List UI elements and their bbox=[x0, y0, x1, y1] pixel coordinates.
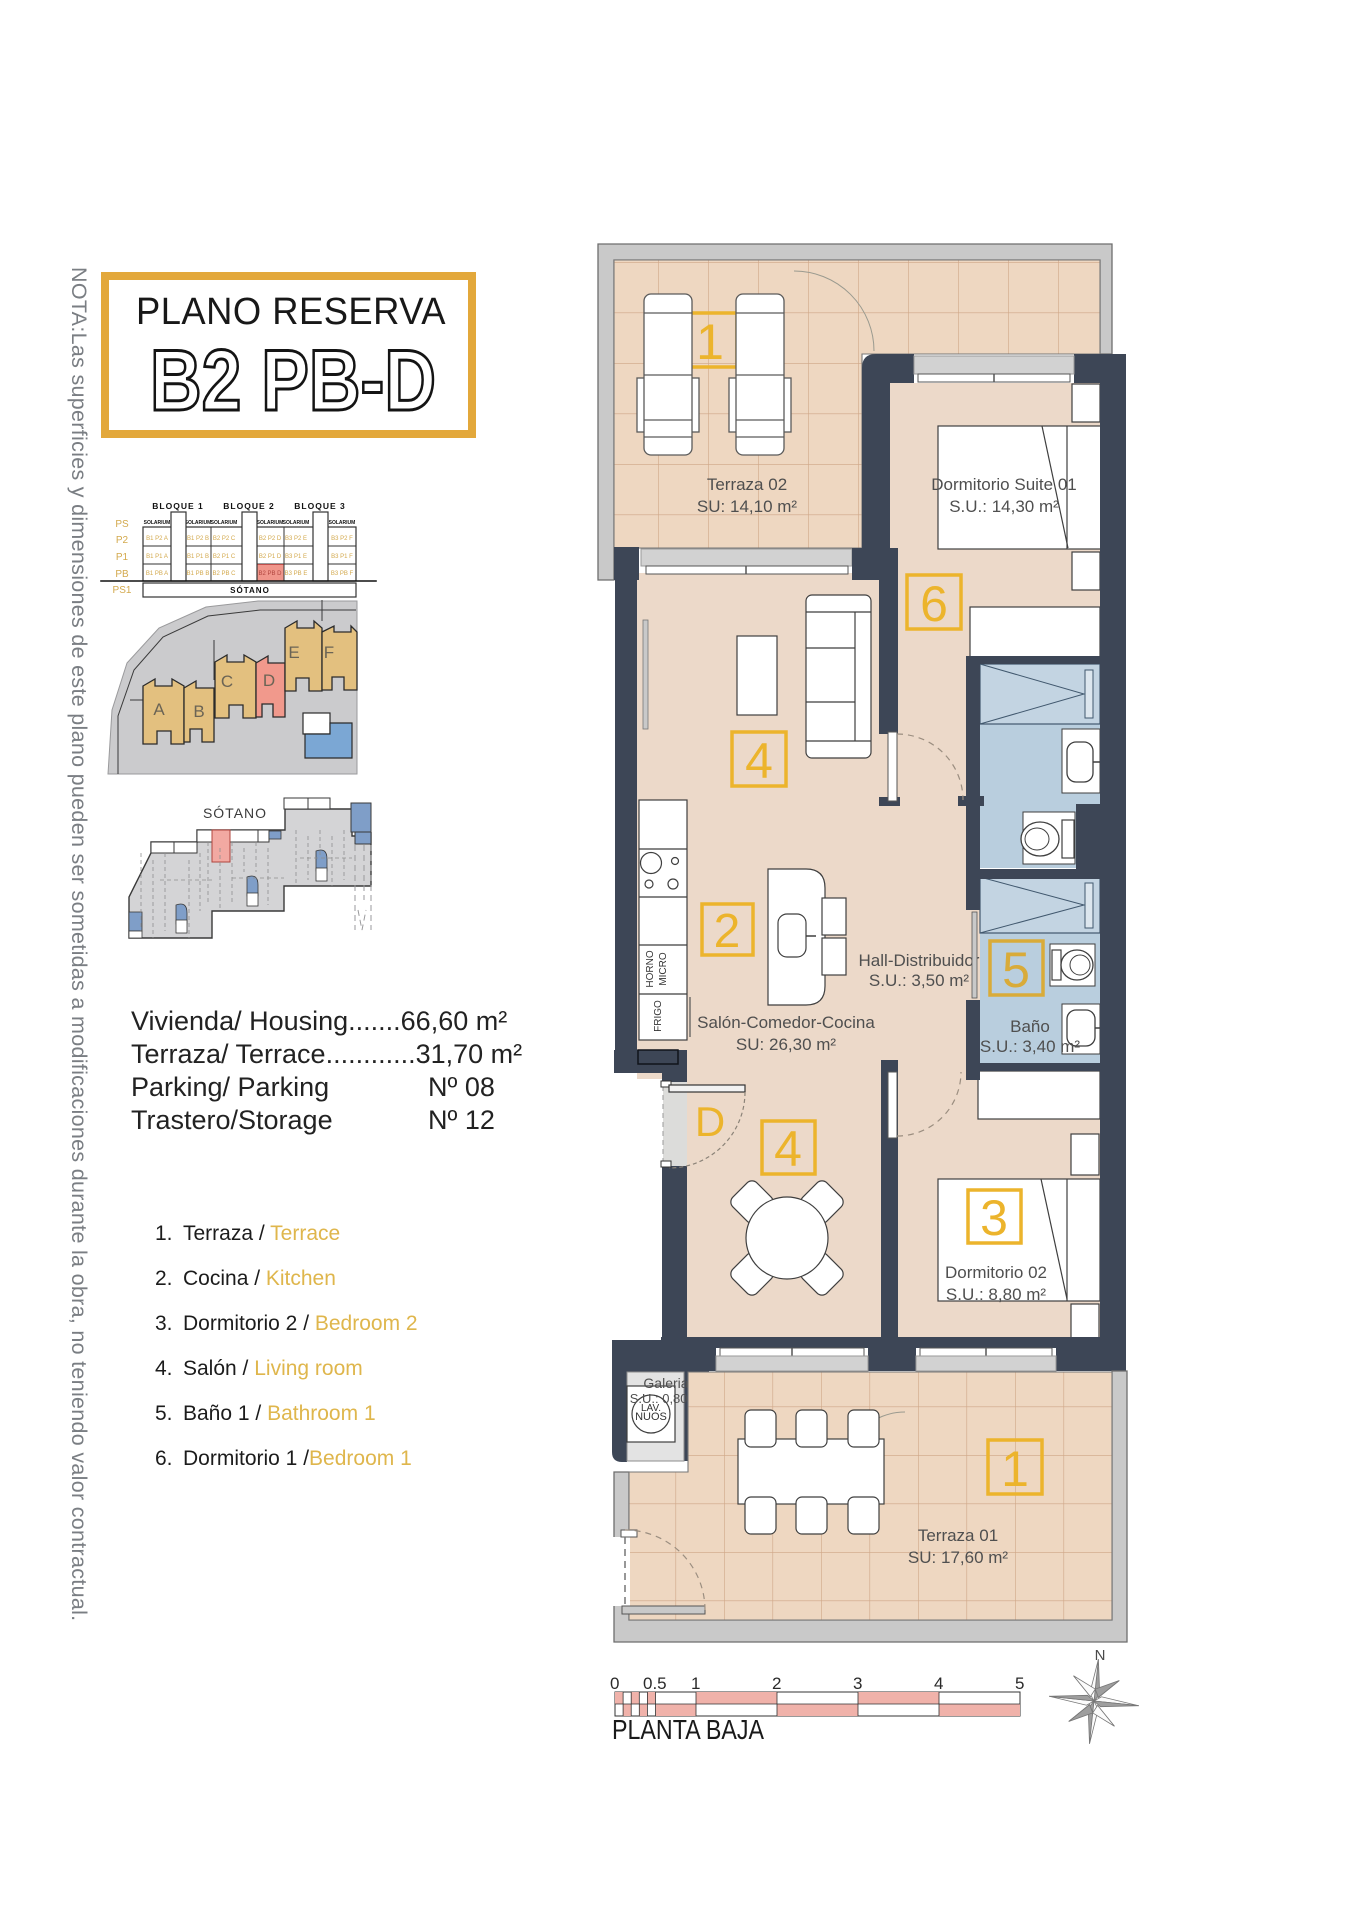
svg-text:B3 PB E: B3 PB E bbox=[285, 571, 308, 577]
svg-text:SOLARIUM: SOLARIUM bbox=[185, 520, 212, 526]
svg-text:Cocina / Kitchen: Cocina / Kitchen bbox=[183, 1267, 336, 1290]
svg-text:4.: 4. bbox=[155, 1357, 173, 1380]
svg-text:Baño 1 / Bathroom 1: Baño 1 / Bathroom 1 bbox=[183, 1402, 376, 1425]
svg-text:PLANO RESERVA: PLANO RESERVA bbox=[136, 291, 446, 333]
svg-text:B1 P2 B: B1 P2 B bbox=[187, 536, 209, 542]
svg-text:F: F bbox=[324, 643, 334, 662]
svg-text:B3 P2 E: B3 P2 E bbox=[285, 536, 307, 542]
svg-text:S.U.: 8,80 m²: S.U.: 8,80 m² bbox=[946, 1285, 1046, 1304]
svg-text:B1 PB A: B1 PB A bbox=[146, 571, 168, 577]
svg-text:B2 PB C: B2 PB C bbox=[212, 571, 236, 577]
svg-text:B1 PB B: B1 PB B bbox=[187, 571, 210, 577]
svg-text:Terraza 01: Terraza 01 bbox=[918, 1526, 998, 1545]
svg-text:PB: PB bbox=[115, 569, 129, 580]
svg-text:N: N bbox=[1095, 1647, 1106, 1664]
svg-text:Nº 12: Nº 12 bbox=[428, 1105, 495, 1135]
svg-text:6: 6 bbox=[920, 576, 948, 632]
svg-text:SOLARIUM: SOLARIUM bbox=[211, 520, 238, 526]
svg-text:Dormitorio 2 / Bedroom 2: Dormitorio 2 / Bedroom 2 bbox=[183, 1312, 418, 1335]
svg-text:2.: 2. bbox=[155, 1267, 173, 1290]
svg-text:SOLARIUM: SOLARIUM bbox=[283, 520, 310, 526]
svg-text:B2 P2 C: B2 P2 C bbox=[213, 536, 236, 542]
svg-text:SOLARIUM: SOLARIUM bbox=[144, 520, 171, 526]
svg-text:BLOQUE 2: BLOQUE 2 bbox=[223, 501, 274, 511]
svg-text:0: 0 bbox=[610, 1674, 619, 1693]
svg-text:E: E bbox=[288, 643, 299, 662]
svg-text:A: A bbox=[153, 700, 165, 719]
svg-text:B3 P1 E: B3 P1 E bbox=[285, 554, 307, 560]
svg-text:B1 P1 B: B1 P1 B bbox=[187, 554, 209, 560]
svg-text:4: 4 bbox=[745, 733, 773, 789]
svg-text:0.5: 0.5 bbox=[643, 1674, 667, 1693]
svg-text:Dormitorio 1 /Bedroom 1: Dormitorio 1 /Bedroom 1 bbox=[183, 1447, 412, 1470]
svg-text:SOLARIUM: SOLARIUM bbox=[329, 520, 356, 526]
svg-text:FRIGO: FRIGO bbox=[653, 1000, 664, 1032]
svg-text:B2 PB-D: B2 PB-D bbox=[150, 333, 436, 429]
svg-text:B2 P2 D: B2 P2 D bbox=[259, 536, 282, 542]
svg-text:P1: P1 bbox=[116, 552, 129, 563]
svg-text:HORNO: HORNO bbox=[645, 950, 656, 987]
svg-text:4: 4 bbox=[774, 1121, 802, 1177]
svg-text:SU: 17,60 m²: SU: 17,60 m² bbox=[908, 1548, 1008, 1567]
svg-text:2: 2 bbox=[772, 1674, 781, 1693]
svg-text:Salón / Living room: Salón / Living room bbox=[183, 1357, 363, 1380]
svg-text:1.: 1. bbox=[155, 1222, 173, 1245]
svg-text:S.U.: 14,30 m²: S.U.: 14,30 m² bbox=[949, 497, 1059, 516]
svg-text:Vivienda/ Housing.......66,60: Vivienda/ Housing.......66,60 m² bbox=[131, 1006, 507, 1036]
svg-text:1: 1 bbox=[696, 314, 724, 370]
svg-text:MICRO: MICRO bbox=[658, 952, 669, 986]
svg-text:Terraza / Terrace: Terraza / Terrace bbox=[183, 1222, 340, 1245]
svg-text:SÓTANO: SÓTANO bbox=[230, 586, 270, 595]
svg-text:D: D bbox=[695, 1098, 725, 1145]
svg-text:B3 PB F: B3 PB F bbox=[331, 571, 354, 577]
svg-text:3: 3 bbox=[853, 1674, 862, 1693]
svg-text:PS: PS bbox=[115, 519, 129, 530]
svg-text:SU: 26,30 m²: SU: 26,30 m² bbox=[736, 1035, 836, 1054]
svg-text:BLOQUE 1: BLOQUE 1 bbox=[152, 501, 203, 511]
svg-text:3: 3 bbox=[980, 1190, 1008, 1246]
svg-text:Parking/ Parking: Parking/ Parking bbox=[131, 1072, 329, 1102]
svg-text:BLOQUE 3: BLOQUE 3 bbox=[294, 501, 345, 511]
svg-text:Dormitorio Suite 01: Dormitorio Suite 01 bbox=[931, 475, 1077, 494]
svg-text:Galeria: Galeria bbox=[643, 1375, 688, 1391]
svg-text:SU: 14,10 m²: SU: 14,10 m² bbox=[697, 497, 797, 516]
svg-text:SOLARIUM: SOLARIUM bbox=[257, 520, 284, 526]
svg-text:6.: 6. bbox=[155, 1447, 173, 1470]
svg-text:C: C bbox=[221, 672, 233, 691]
svg-text:B2 PB D: B2 PB D bbox=[258, 571, 282, 577]
svg-text:Terraza 02: Terraza 02 bbox=[707, 475, 787, 494]
svg-text:Hall-Distribuidor: Hall-Distribuidor bbox=[859, 951, 980, 970]
svg-text:1: 1 bbox=[1001, 1441, 1029, 1497]
svg-text:Baño: Baño bbox=[1010, 1017, 1050, 1036]
svg-text:NOTA:Las superficies y dimensi: NOTA:Las superficies y dimensiones de es… bbox=[67, 267, 91, 1621]
svg-text:5: 5 bbox=[1015, 1674, 1024, 1693]
svg-text:PLANTA BAJA: PLANTA BAJA bbox=[612, 1714, 764, 1745]
svg-text:B1 P2 A: B1 P2 A bbox=[146, 536, 168, 542]
svg-text:1: 1 bbox=[691, 1674, 700, 1693]
svg-text:NUOS: NUOS bbox=[635, 1411, 667, 1423]
svg-text:3.: 3. bbox=[155, 1312, 173, 1335]
svg-text:P2: P2 bbox=[116, 535, 129, 546]
svg-text:5: 5 bbox=[1002, 942, 1030, 998]
svg-text:Salón-Comedor-Cocina: Salón-Comedor-Cocina bbox=[697, 1013, 875, 1032]
svg-text:Dormitorio 02: Dormitorio 02 bbox=[945, 1263, 1047, 1282]
svg-text:B2 P1 D: B2 P1 D bbox=[259, 554, 282, 560]
svg-text:5.: 5. bbox=[155, 1402, 173, 1425]
svg-text:Trastero/Storage: Trastero/Storage bbox=[131, 1105, 333, 1135]
svg-text:S.U.: 3,40 m²: S.U.: 3,40 m² bbox=[980, 1037, 1080, 1056]
svg-text:Nº 08: Nº 08 bbox=[428, 1072, 495, 1102]
svg-text:B: B bbox=[193, 702, 204, 721]
svg-text:Terraza/ Terrace............31: Terraza/ Terrace............31,70 m² bbox=[131, 1039, 522, 1069]
svg-text:PS1: PS1 bbox=[113, 585, 132, 596]
svg-text:S.U.: 3,50 m²: S.U.: 3,50 m² bbox=[869, 971, 969, 990]
svg-text:SÓTANO: SÓTANO bbox=[203, 805, 267, 821]
svg-text:D: D bbox=[263, 671, 275, 690]
svg-text:B3 P2 F: B3 P2 F bbox=[331, 536, 353, 542]
svg-text:B3 P1 F: B3 P1 F bbox=[331, 554, 353, 560]
svg-text:2: 2 bbox=[714, 905, 741, 958]
svg-text:B1 P1 A: B1 P1 A bbox=[146, 554, 168, 560]
svg-text:4: 4 bbox=[934, 1674, 943, 1693]
svg-text:B2 P1 C: B2 P1 C bbox=[213, 554, 236, 560]
